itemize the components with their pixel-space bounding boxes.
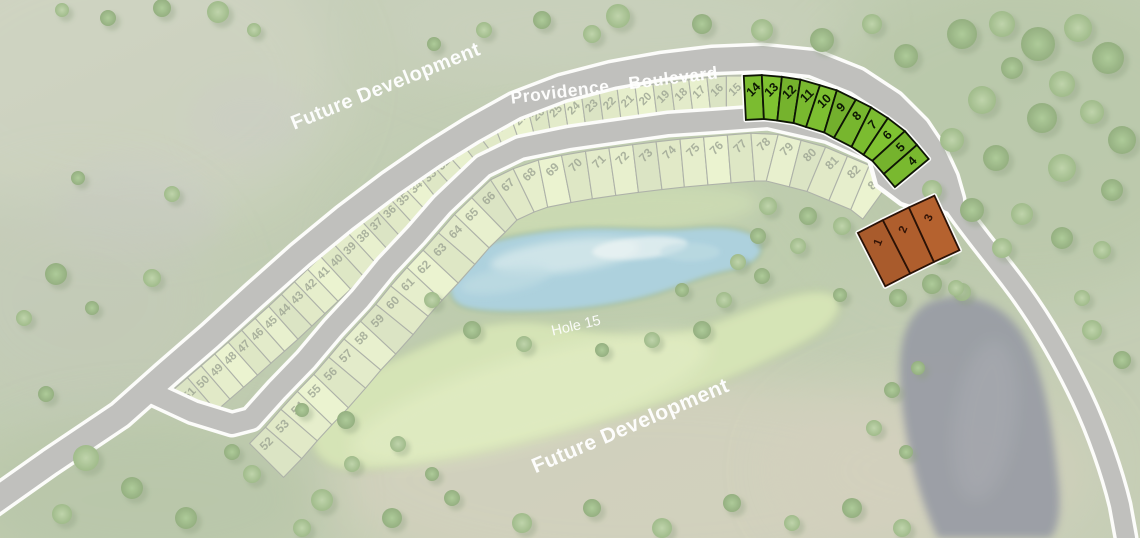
- site-plan-map: 5150494847464544434241403938373635343332…: [0, 0, 1140, 538]
- site-plan-svg: 5150494847464544434241403938373635343332…: [0, 0, 1140, 538]
